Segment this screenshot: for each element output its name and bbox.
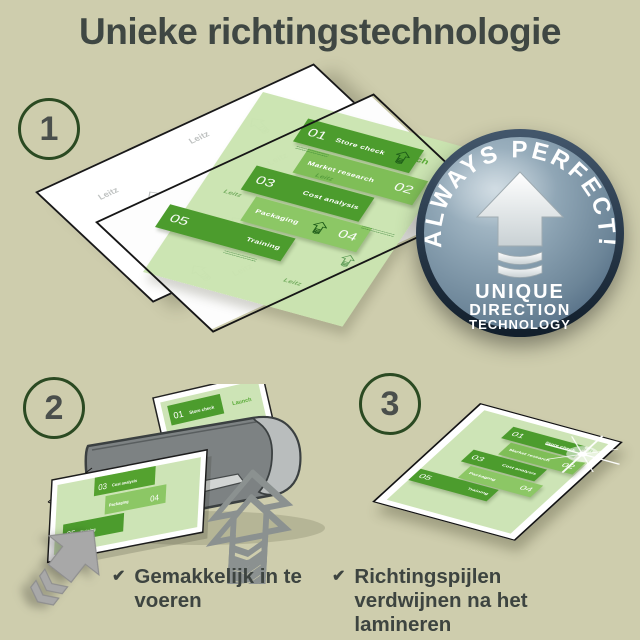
page-title: Unieke richtingstechnologie xyxy=(0,11,640,53)
check-icon: ✔ xyxy=(112,568,125,613)
doc-item-number: 04 xyxy=(335,227,361,244)
check-icon: ✔ xyxy=(332,568,345,637)
doc-item-label: Store check xyxy=(544,441,577,452)
doc-item-number: 03 xyxy=(252,174,278,191)
doc-item-label: Packaging xyxy=(254,208,301,226)
badge-line-technology: TECHNOLOGY xyxy=(469,317,571,332)
checklist-item-arrows-disappear: ✔ Richtingspijlen verdwijnen na het lami… xyxy=(332,565,612,637)
doc-item-label: Store check xyxy=(334,137,387,156)
outfeed-item-number: 04 xyxy=(150,493,160,504)
checklist-text: Gemakkelijk in te voeren xyxy=(134,565,302,613)
checklist-text: Richtingspijlen verdwijnen na het lamine… xyxy=(354,565,612,637)
doc-watermark: Leitz xyxy=(282,277,303,287)
doc-item-label: Cost analysis xyxy=(501,464,538,476)
doc-item-label: Training xyxy=(466,487,489,495)
always-perfect-badge: ALWAYS PERFECT! UNIQUE DIRECTION TECHNOL… xyxy=(413,126,627,340)
doc-item-number: 02 xyxy=(559,461,577,470)
doc-item-number: 05 xyxy=(166,212,192,229)
laminated-document-print: Launch 01 Store check Market research 02… xyxy=(387,410,609,533)
badge-line-unique: UNIQUE xyxy=(475,281,565,303)
doc-item-label: Packaging xyxy=(468,472,497,482)
checklist-item-easy-feed: ✔ Gemakkelijk in te voeren xyxy=(112,565,302,613)
doc-item-number: 01 xyxy=(509,431,527,440)
step-1-number: 1 xyxy=(18,98,80,160)
doc-item-number: 04 xyxy=(517,484,535,493)
doc-item-label: Training xyxy=(245,236,283,251)
doc-item-number: 01 xyxy=(304,126,330,143)
doc-watermark: Leitz xyxy=(222,188,243,198)
outfeed-item-number: 03 xyxy=(98,482,108,493)
doc-item-label: Cost analysis xyxy=(301,189,361,210)
direction-arrow-watermark-icon xyxy=(308,220,330,236)
pouch-watermark: Leitz xyxy=(186,130,212,145)
pouch-watermark: Leitz xyxy=(95,186,121,201)
doc-item-number: 05 xyxy=(416,473,434,482)
step-3-number: 3 xyxy=(359,373,421,435)
infographic-canvas: Unieke richtingstechnologie 1 Leitz Leit… xyxy=(0,0,640,640)
direction-arrow-watermark-icon xyxy=(391,150,413,166)
direction-arrow-watermark-icon xyxy=(337,253,358,268)
doc-item-number: 03 xyxy=(469,454,487,463)
